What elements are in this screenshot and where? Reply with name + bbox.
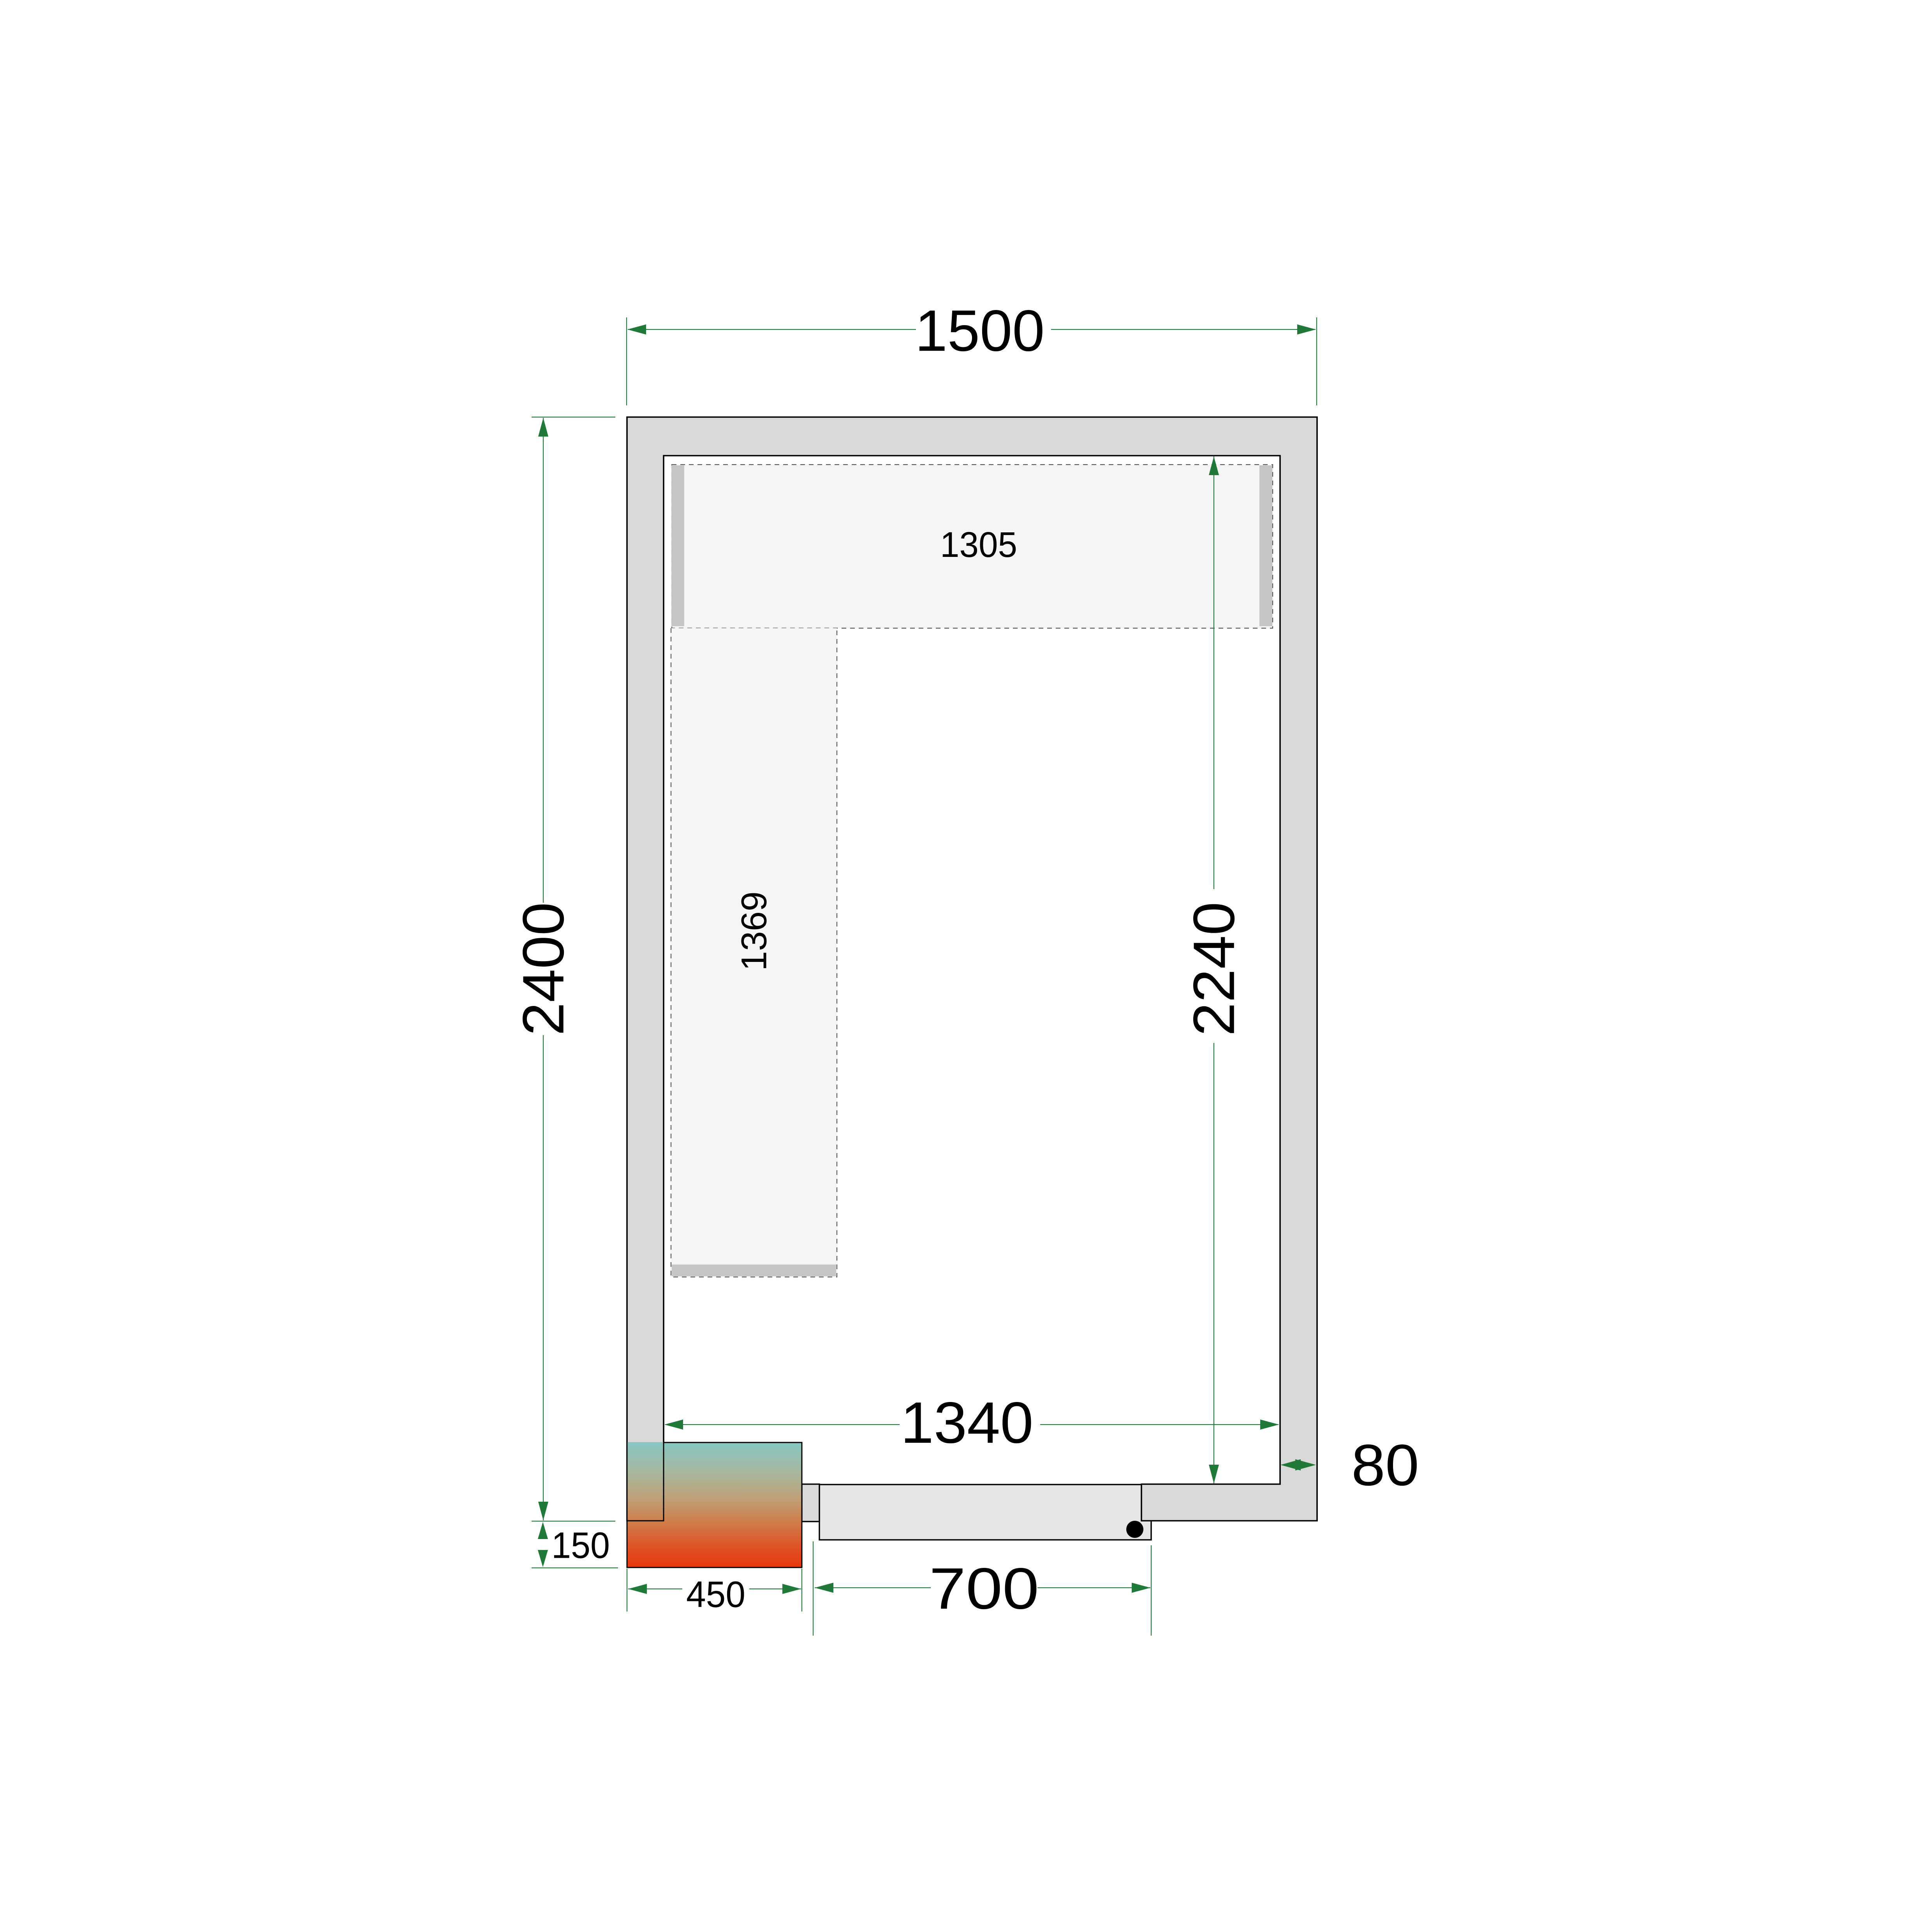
svg-text:2240: 2240 bbox=[1181, 902, 1247, 1036]
svg-text:700: 700 bbox=[929, 1556, 1039, 1621]
svg-text:1500: 1500 bbox=[915, 298, 1045, 363]
svg-text:1305: 1305 bbox=[940, 525, 1017, 565]
svg-text:1369: 1369 bbox=[734, 891, 774, 971]
svg-text:2400: 2400 bbox=[511, 902, 576, 1036]
svg-text:150: 150 bbox=[551, 1525, 610, 1566]
svg-text:450: 450 bbox=[686, 1574, 745, 1615]
svg-text:1340: 1340 bbox=[901, 1390, 1034, 1455]
svg-text:80: 80 bbox=[1351, 1432, 1419, 1498]
